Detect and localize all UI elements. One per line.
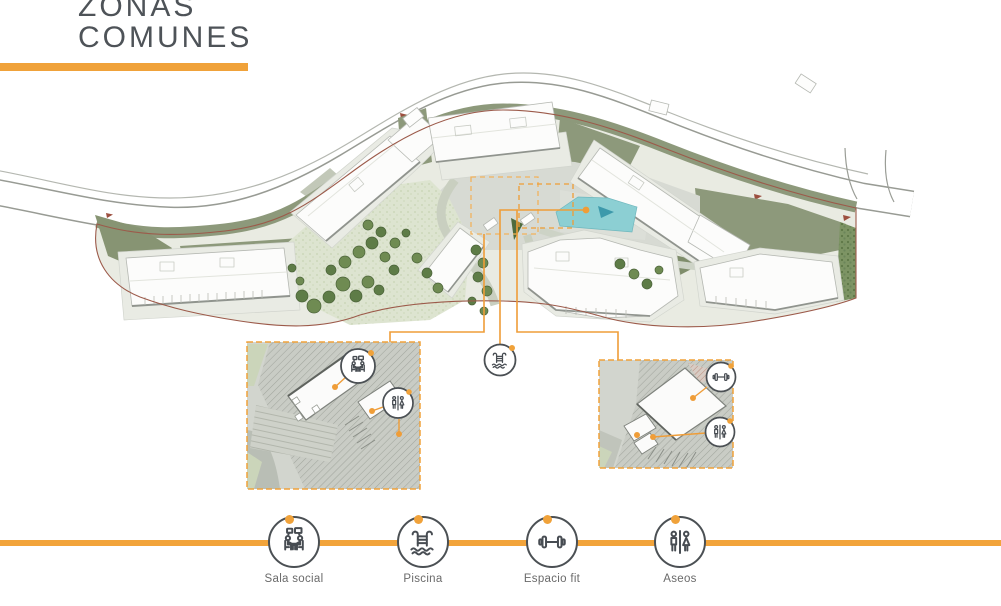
title-underline-bar bbox=[0, 63, 248, 71]
legend-label: Aseos bbox=[610, 573, 750, 585]
legend-label: Piscina bbox=[353, 573, 493, 585]
legend-divider-line bbox=[0, 540, 1001, 546]
wc-figures-icon bbox=[654, 516, 706, 568]
wc-figures-icon bbox=[383, 388, 413, 418]
wc-figures-icon bbox=[706, 418, 735, 447]
dumbbell-icon bbox=[707, 363, 736, 392]
building-west bbox=[118, 242, 300, 320]
legend-label: Sala social bbox=[224, 573, 364, 585]
pool-ladder-icon bbox=[485, 345, 516, 376]
legend-accent-dot bbox=[671, 515, 680, 524]
site-plan-figure bbox=[0, 0, 1001, 606]
legend-accent-dot bbox=[285, 515, 294, 524]
page-title-line1: ZONAS bbox=[78, 0, 252, 22]
pool-ladder-icon bbox=[397, 516, 449, 568]
meeting-people-icon bbox=[268, 516, 320, 568]
building-east bbox=[694, 248, 844, 314]
legend-label: Espacio fit bbox=[482, 573, 622, 585]
meeting-people-icon bbox=[341, 349, 375, 383]
legend-accent-dot bbox=[414, 515, 423, 524]
pool-callout-dot bbox=[583, 207, 590, 214]
brochure-page: ZONAS COMUNES Sala social Piscina Espaci… bbox=[0, 0, 1001, 606]
page-title: ZONAS COMUNES bbox=[78, 0, 252, 53]
dumbbell-icon bbox=[526, 516, 578, 568]
page-title-line2: COMUNES bbox=[78, 22, 252, 53]
legend-accent-dot bbox=[543, 515, 552, 524]
